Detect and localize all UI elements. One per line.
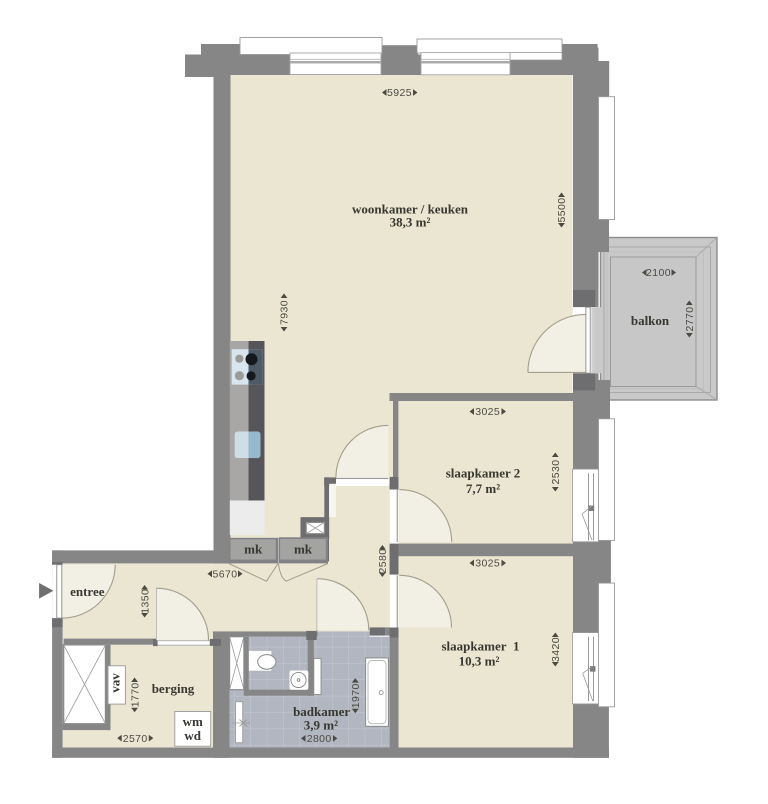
- svg-text:berging: berging: [152, 681, 195, 696]
- svg-text:slaapkamer 2: slaapkamer 2: [446, 466, 521, 481]
- svg-text:2570: 2570: [123, 733, 148, 745]
- svg-text:5500: 5500: [556, 198, 568, 223]
- svg-text:2800: 2800: [307, 733, 332, 745]
- svg-text:2770: 2770: [684, 307, 696, 332]
- svg-text:slaapkamer 1: slaapkamer 1: [442, 639, 520, 654]
- svg-text:3025: 3025: [475, 558, 500, 570]
- svg-text:5670: 5670: [213, 569, 238, 581]
- svg-text:balkon: balkon: [631, 313, 670, 328]
- svg-text:mk: mk: [244, 542, 263, 557]
- svg-text:2100: 2100: [646, 267, 671, 279]
- svg-text:1970: 1970: [350, 683, 362, 708]
- svg-text:1350: 1350: [139, 589, 151, 614]
- svg-text:wm: wm: [183, 714, 203, 729]
- svg-text:10,3 m²: 10,3 m²: [459, 654, 500, 669]
- svg-text:wd: wd: [184, 728, 201, 743]
- svg-text:3025: 3025: [475, 406, 500, 418]
- svg-text:3420: 3420: [550, 637, 562, 662]
- svg-text:7,7 m²: 7,7 m²: [466, 481, 500, 496]
- svg-text:7930: 7930: [279, 300, 291, 325]
- svg-text:2580: 2580: [377, 549, 389, 574]
- svg-text:2530: 2530: [550, 460, 562, 485]
- svg-text:mk: mk: [294, 542, 313, 557]
- svg-text:1770: 1770: [129, 682, 141, 707]
- svg-text:entree: entree: [70, 584, 105, 599]
- svg-text:5925: 5925: [387, 87, 412, 99]
- svg-text:38,3 m²: 38,3 m²: [390, 215, 431, 230]
- svg-text:vav: vav: [108, 673, 123, 693]
- svg-text:3,9 m²: 3,9 m²: [304, 718, 338, 733]
- svg-text:badkamer: badkamer: [293, 704, 350, 719]
